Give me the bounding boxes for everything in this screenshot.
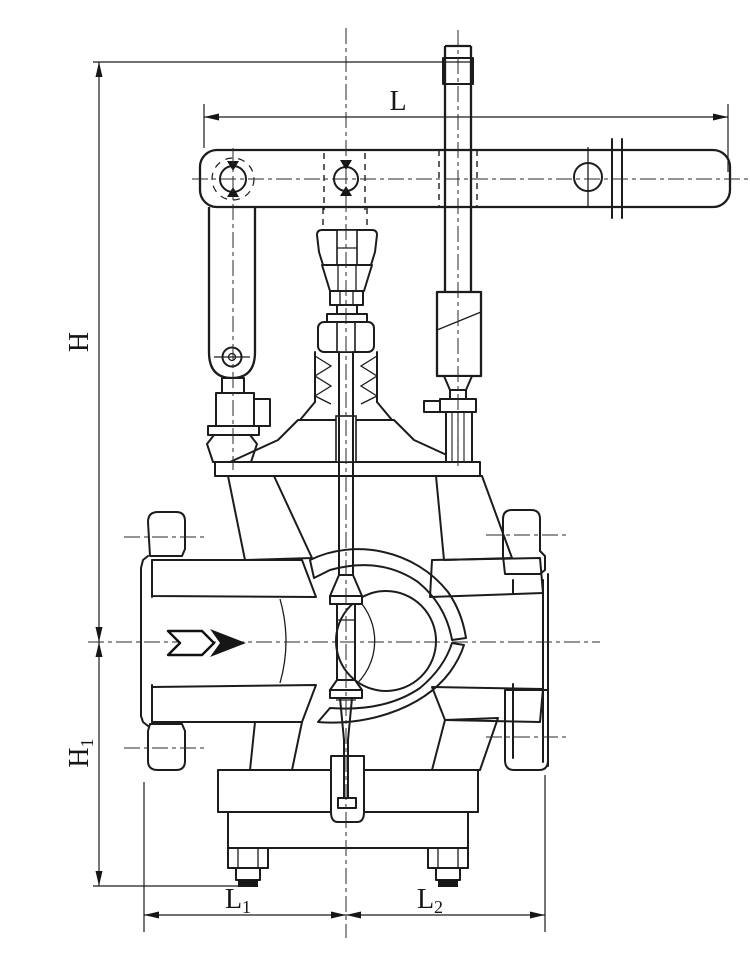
lever-assembly xyxy=(200,139,730,230)
dimension-h: H xyxy=(64,62,103,642)
stem-coupling xyxy=(317,230,377,322)
dimension-l: L xyxy=(204,86,728,121)
dimension-h1: H1 xyxy=(64,642,103,886)
body-upper-right-wall xyxy=(436,476,512,560)
rod-block xyxy=(437,292,481,376)
body-lower-right-wall xyxy=(432,718,498,770)
left-link-rod xyxy=(207,207,270,462)
valve-disc xyxy=(336,591,436,691)
flow-arrow-icon xyxy=(168,629,246,657)
body-lower-left-wall xyxy=(250,722,302,770)
bottom-bolt-right xyxy=(428,848,468,887)
bottom-bolt-left xyxy=(228,848,268,887)
dimension-l2: L2 xyxy=(346,884,545,919)
left-standoff xyxy=(207,435,257,462)
packing-left xyxy=(315,356,331,404)
adjusting-rod xyxy=(424,46,481,462)
valve-cross-section-svg: H H1 L L1 L2 xyxy=(0,0,750,967)
coupling-nut xyxy=(322,265,372,291)
rod-adjuster xyxy=(446,412,472,462)
dimension-l1: L1 xyxy=(144,884,346,919)
packing-right xyxy=(361,356,377,404)
valve-technical-drawing: H H1 L L1 L2 xyxy=(0,0,750,967)
label-h: H xyxy=(64,332,95,352)
label-l2: L2 xyxy=(417,884,443,917)
label-l1: L1 xyxy=(225,884,251,917)
outlet-flange xyxy=(430,510,548,770)
label-h1: H1 xyxy=(64,738,97,767)
bonnet-flange xyxy=(215,462,480,476)
body-upper-left-wall xyxy=(228,476,312,560)
label-l: L xyxy=(389,86,406,117)
